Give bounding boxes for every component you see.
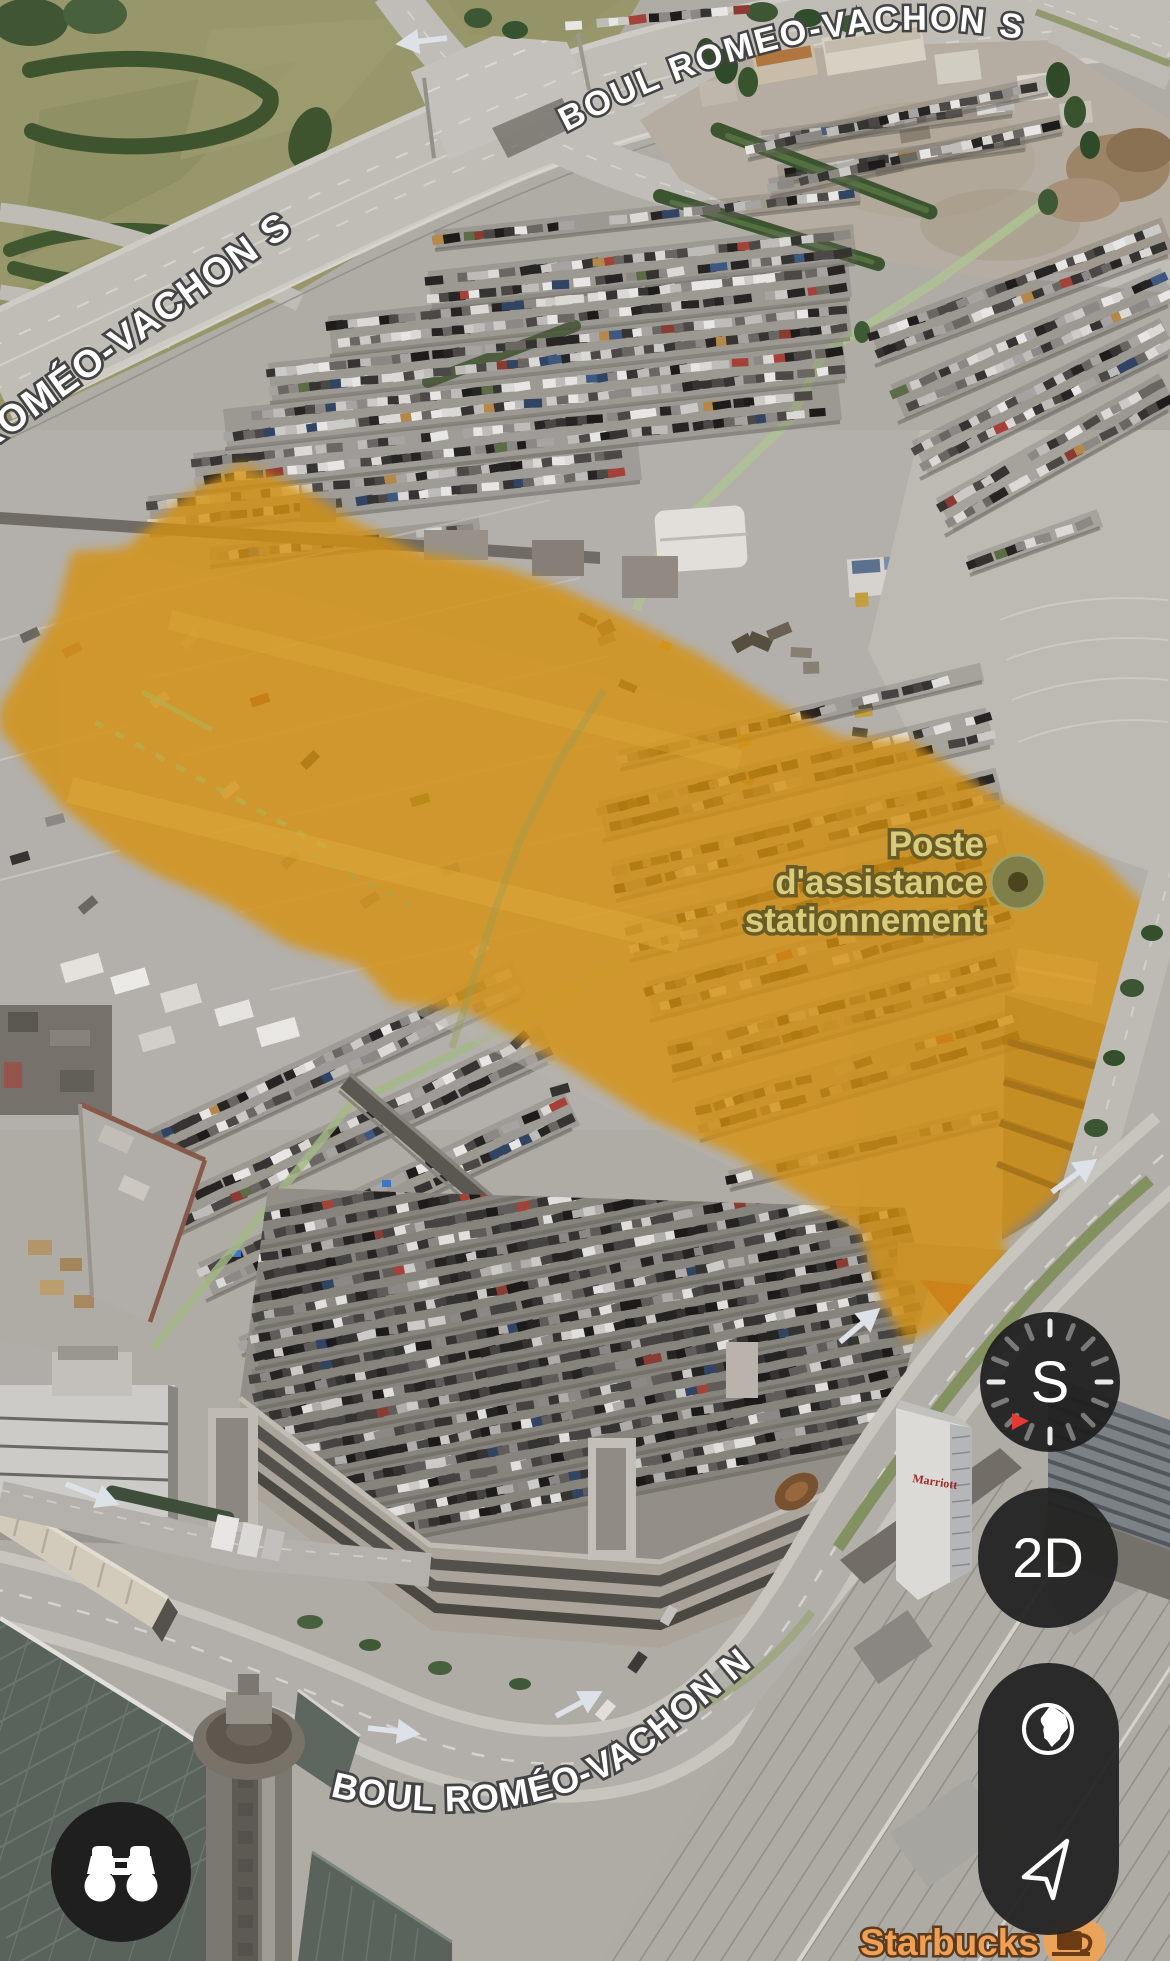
svg-text:stationnement: stationnement bbox=[745, 901, 985, 940]
svg-text:d'assistance: d'assistance bbox=[775, 863, 984, 902]
svg-text:S: S bbox=[1031, 1350, 1070, 1415]
svg-text:2D: 2D bbox=[1012, 1526, 1084, 1589]
svg-text:Poste: Poste bbox=[889, 825, 984, 864]
svg-text:Starbucks: Starbucks bbox=[860, 1922, 1039, 1961]
